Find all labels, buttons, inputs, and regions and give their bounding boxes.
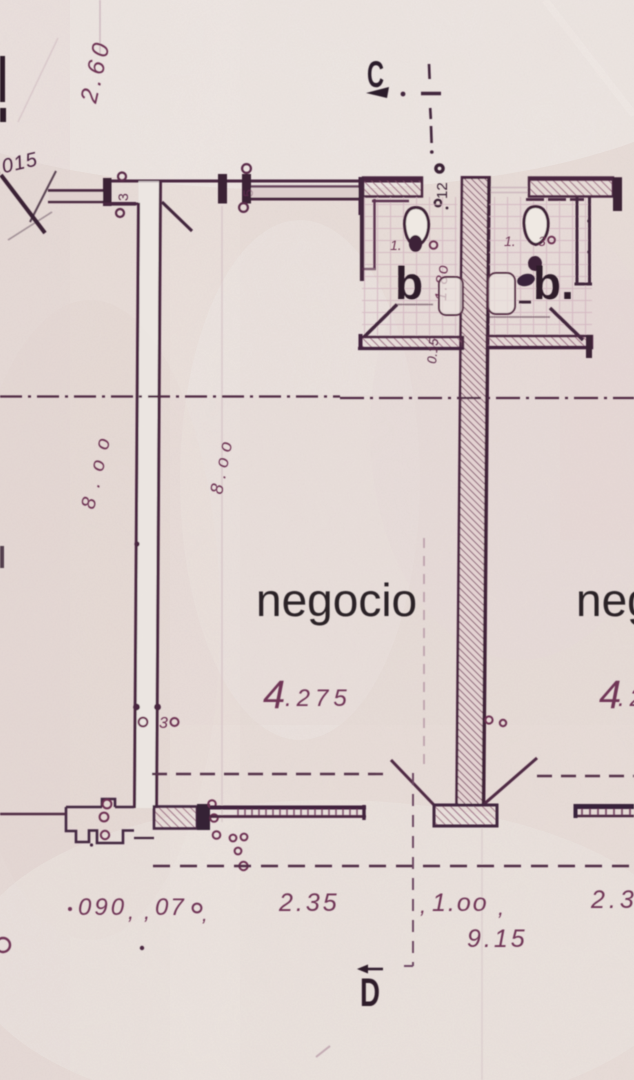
svg-text:2.35: 2.35 [590,886,634,914]
svg-text:b.: b. [533,257,574,309]
svg-text:negocio: negocio [256,574,417,626]
svg-text:C: C [367,54,384,95]
svg-text:1.oo: 1.oo [432,889,489,917]
svg-text:3: 3 [538,233,546,249]
svg-text:9.15: 9.15 [467,925,528,953]
svg-text:,: , [498,895,504,920]
svg-text:1.: 1. [504,233,516,249]
svg-text:2.35: 2.35 [278,889,340,917]
svg-text:,: , [128,899,134,924]
svg-text:,: , [202,904,208,926]
svg-text:.275: .275 [285,685,352,712]
svg-text:.275: .275 [618,685,634,712]
svg-text:090: 090 [78,894,127,921]
svg-text:,: , [144,899,150,924]
svg-text:D: D [360,971,380,1015]
svg-text:4: 4 [263,673,285,717]
svg-text:b: b [395,257,423,309]
svg-text:07: 07 [155,894,186,921]
svg-text:3: 3 [115,193,131,201]
svg-text:12: 12 [434,182,451,199]
svg-text:,: , [420,893,426,918]
svg-text:1.: 1. [390,237,402,253]
svg-text:0.15: 0.15 [424,337,441,364]
svg-text:3: 3 [159,715,168,732]
svg-text:negocio: negocio [576,574,634,626]
